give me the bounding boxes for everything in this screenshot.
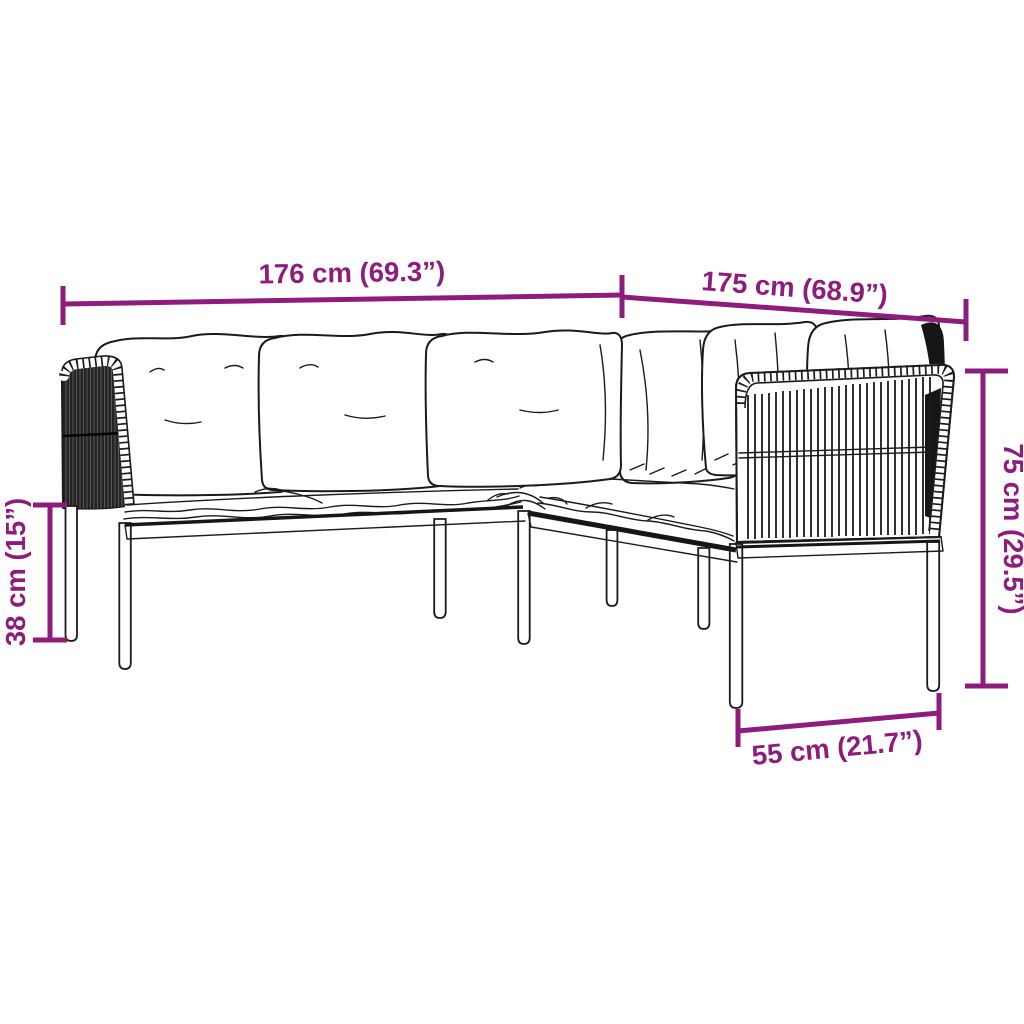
back-cushions-left [95, 330, 622, 495]
label-seat-depth: 55 cm (21.7”) [750, 724, 923, 771]
sofa-illustration [62, 316, 954, 708]
label-width-left: 176 cm (69.3”) [258, 256, 445, 290]
woven-end-panel [736, 365, 954, 542]
label-seat-height: 38 cm (15”) [0, 498, 31, 646]
left-arm-panel [62, 356, 134, 512]
label-back-height: 75 cm (29.5”) [998, 443, 1024, 614]
product-dimension-diagram: 176 cm (69.3”) 175 cm (68.9”) 38 cm (15”… [0, 0, 1024, 1024]
dimension-seat-height [33, 505, 67, 640]
